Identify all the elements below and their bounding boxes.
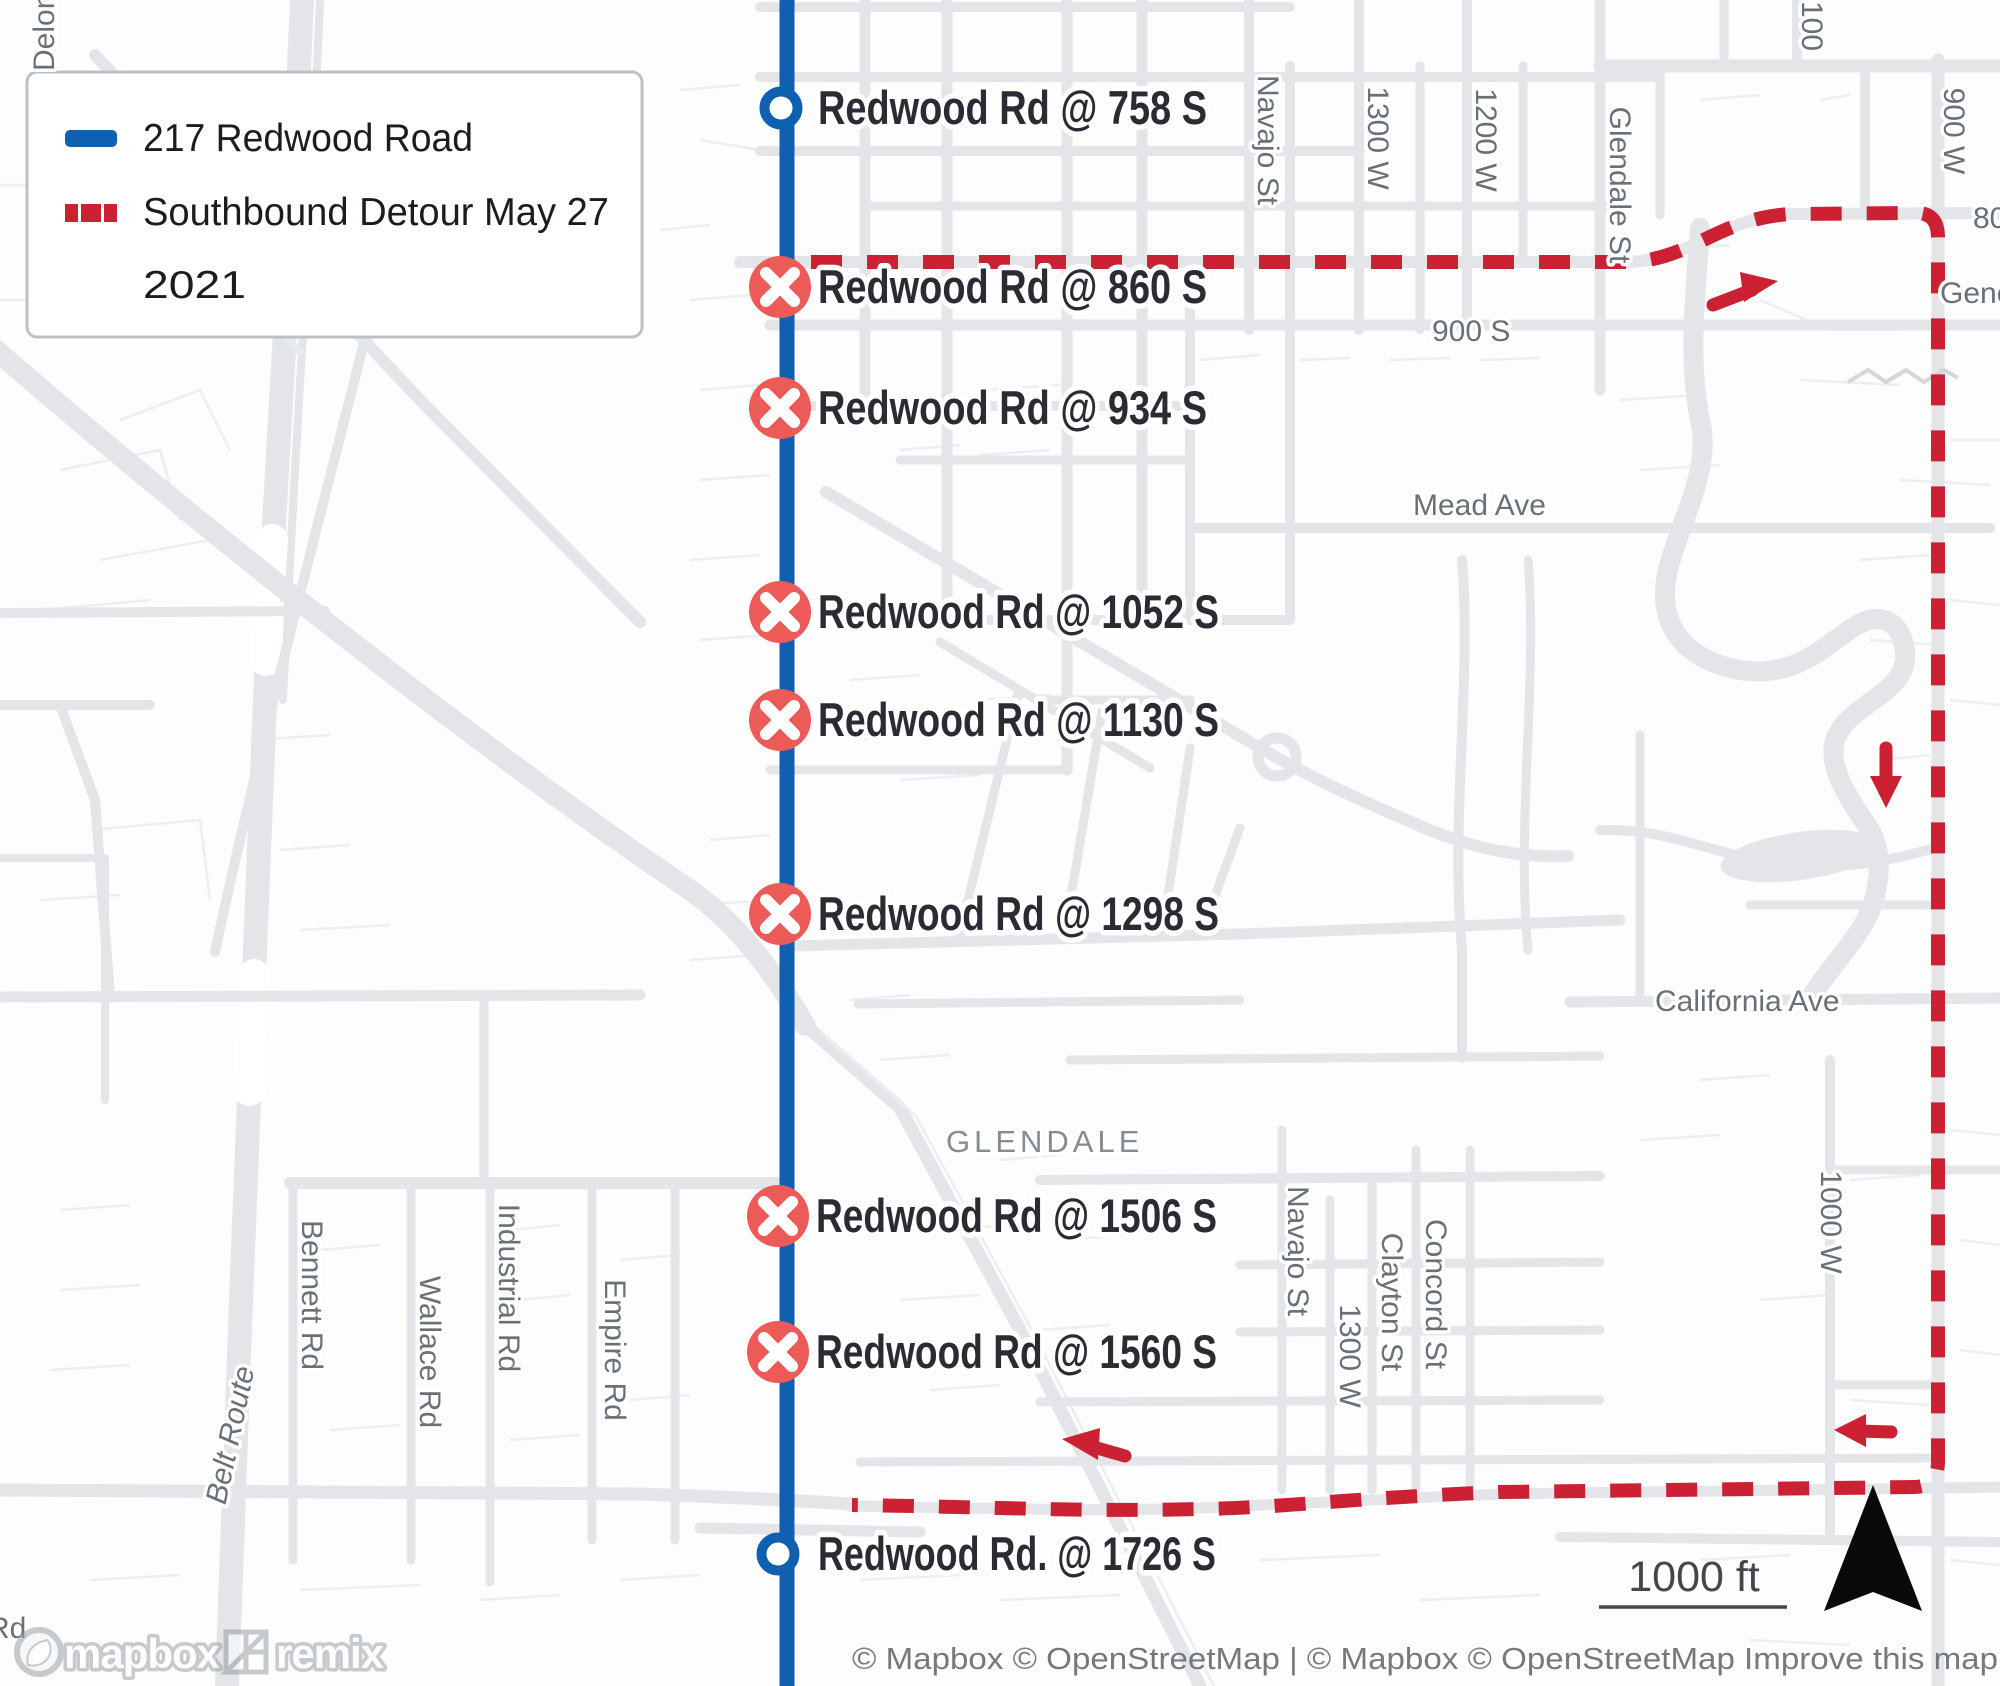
svg-text:Wallace Rd: Wallace Rd <box>413 1276 446 1428</box>
svg-text:Glendale St: Glendale St <box>1603 107 1636 264</box>
svg-text:Clayton St: Clayton St <box>1375 1233 1408 1372</box>
svg-text:1300 W: 1300 W <box>1361 86 1394 190</box>
svg-text:Redwood Rd. @ 1726 S: Redwood Rd. @ 1726 S <box>818 1527 1216 1580</box>
svg-text:Redwood Rd @ 934 S: Redwood Rd @ 934 S <box>818 381 1207 434</box>
svg-text:Mead Ave: Mead Ave <box>1413 489 1546 522</box>
svg-text:1200 W: 1200 W <box>1469 88 1502 192</box>
svg-text:General Dr: General Dr <box>1940 277 2000 310</box>
svg-text:Redwood Rd @ 1506 S: Redwood Rd @ 1506 S <box>816 1189 1217 1242</box>
svg-text:Delong St: Delong St <box>28 0 61 71</box>
svg-text:Redwood Rd @ 758 S: Redwood Rd @ 758 S <box>818 81 1207 134</box>
svg-text:Navajo St: Navajo St <box>1251 75 1284 206</box>
svg-text:100: 100 <box>1795 1 1828 51</box>
svg-text:2021: 2021 <box>143 264 246 307</box>
svg-text:Bennett Rd: Bennett Rd <box>295 1220 328 1370</box>
svg-text:Empire Rd: Empire Rd <box>598 1279 631 1421</box>
svg-text:Concord St: Concord St <box>1419 1219 1452 1370</box>
svg-text:remix: remix <box>276 1630 385 1677</box>
svg-text:217 Redwood Road: 217 Redwood Road <box>143 117 473 160</box>
svg-text:800 S: 800 S <box>1973 202 2000 235</box>
svg-text:mapbox: mapbox <box>64 1630 221 1677</box>
svg-text:Redwood Rd @ 1052 S: Redwood Rd @ 1052 S <box>818 585 1219 638</box>
svg-text:Redwood Rd @ 1560 S: Redwood Rd @ 1560 S <box>816 1325 1217 1378</box>
svg-text:900 W: 900 W <box>1937 88 1970 175</box>
svg-text:Redwood Rd @ 860 S: Redwood Rd @ 860 S <box>818 260 1207 313</box>
svg-text:1000 W: 1000 W <box>1814 1170 1847 1274</box>
svg-text:GLENDALE: GLENDALE <box>946 1124 1143 1159</box>
svg-text:1300 W: 1300 W <box>1333 1304 1366 1408</box>
svg-text:900 S: 900 S <box>1432 315 1510 348</box>
svg-text:Southbound Detour May 27: Southbound Detour May 27 <box>143 191 609 234</box>
svg-text:Redwood Rd @ 1130 S: Redwood Rd @ 1130 S <box>818 693 1219 746</box>
svg-text:Industrial Rd: Industrial Rd <box>492 1204 525 1372</box>
svg-text:California Ave: California Ave <box>1655 985 1840 1018</box>
svg-text:1000 ft: 1000 ft <box>1628 1553 1760 1601</box>
svg-text:Navajo St: Navajo St <box>1281 1186 1314 1317</box>
svg-text:© Mapbox © OpenStreetMap | © M: © Mapbox © OpenStreetMap | © Mapbox © Op… <box>852 1641 1998 1676</box>
svg-text:Redwood Rd @ 1298 S: Redwood Rd @ 1298 S <box>818 887 1219 940</box>
